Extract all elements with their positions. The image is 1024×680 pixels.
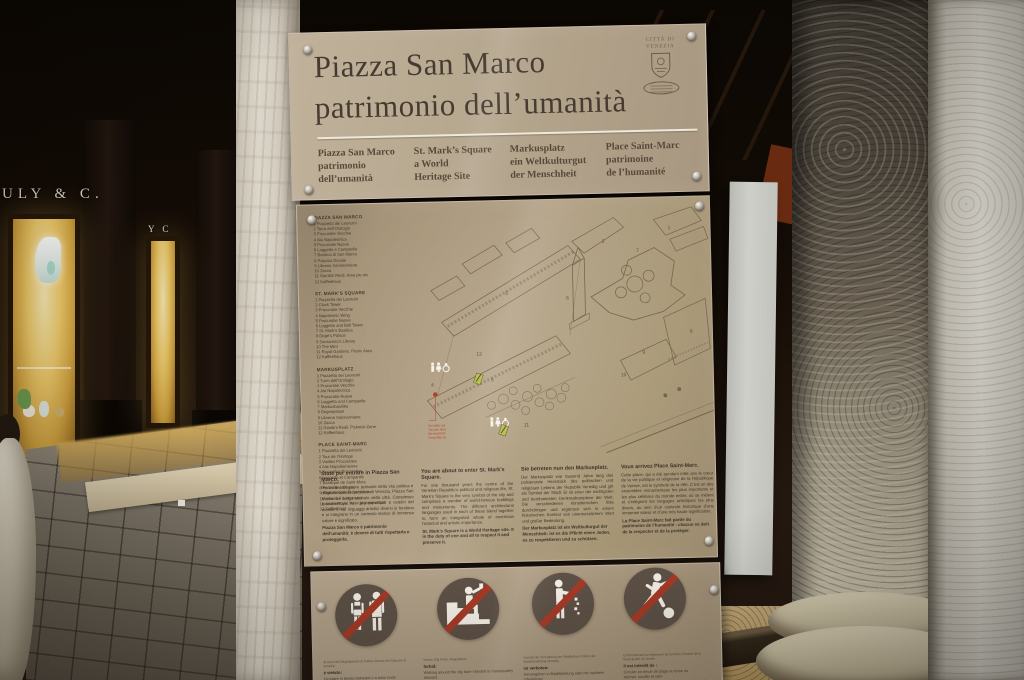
paragraph-french: Vous arrivez Place Saint-Marc. Cette pla… (621, 462, 715, 541)
screw (687, 32, 696, 41)
screw (705, 536, 714, 545)
svg-text:4: 4 (431, 383, 434, 389)
rules-english: Venice City Police Regulations forbid: W… (423, 656, 516, 680)
svg-text:12: 12 (476, 352, 482, 358)
rules-french: Conformément au règlement de la Police U… (623, 651, 716, 680)
rules-intro: Venice City Police Regulations (423, 656, 515, 662)
shop-window (146, 236, 180, 428)
sign-header-panel: Piazza San Marco patrimonio dell’umanità… (288, 23, 710, 200)
paragraph-footer: La Place Saint-Marc fait partie du patri… (622, 516, 714, 535)
rules-intro: Conformément au règlement de la Police U… (623, 651, 715, 661)
legend-items: 1 Piazzetta dei Leoncini 2 Clock Tower 3… (315, 295, 422, 360)
svg-text:11: 11 (524, 422, 530, 428)
rules-items: Circolare in tenuta balneare o a torso n… (324, 675, 416, 680)
paragraph-body: For one thousand years the centre of the… (421, 481, 514, 527)
rules-intro: Gemäß der Verordnung der Städtischen Pol… (523, 654, 615, 664)
screw (303, 45, 312, 54)
divider-line (317, 129, 697, 140)
translation-german: Markusplatz ein Weltkulturgut der Mensch… (510, 141, 607, 182)
no-littering-icon (531, 572, 594, 635)
screw (313, 551, 322, 560)
glassware (39, 401, 49, 417)
screw (317, 602, 326, 611)
svg-text:7: 7 (636, 248, 639, 254)
rules-text: Ai sensi del Regolamento di Polizia Urba… (323, 651, 716, 680)
photo-venice-arcade: ULY & C. Y C Piazza San Marco patrimonio… (0, 0, 1024, 680)
sign-title-line2: patrimonio dell’umanità (314, 83, 627, 125)
crest-seal-oval (643, 81, 679, 95)
translation-english: St. Mark’s Square a World Heritage Site (414, 143, 511, 184)
screw (304, 185, 313, 194)
sign-title: Piazza San Marco patrimonio dell’umanità (313, 40, 645, 129)
svg-text:Vous êtes ici: Vous êtes ici (428, 435, 446, 439)
legend-section-italian: PIAZZA SAN MARCO 1 Piazzetta dei Leoncin… (313, 213, 421, 284)
svg-text:3: 3 (505, 291, 508, 297)
svg-text:6: 6 (566, 296, 569, 302)
venice-crest-logo: CITTÀ DI VENEZIA (629, 37, 692, 95)
svg-text:8: 8 (690, 329, 693, 335)
paragraph-title: Sie betreten nun den Markusplatz. (521, 465, 613, 473)
paragraph-body: Der Markusplatz war tausend Jahre lang d… (521, 473, 614, 524)
shop-sign-text-partial: Y C (148, 224, 171, 234)
paragraph-german: Sie betreten nun den Markusplatz. Der Ma… (521, 465, 615, 544)
heritage-sign: Piazza San Marco patrimonio dell’umanità… (286, 17, 725, 680)
mottled-column (792, 0, 938, 680)
venice-shield-icon (650, 52, 673, 78)
white-column (928, 0, 1024, 680)
glass-sculpture (35, 237, 61, 283)
paper-scrap (178, 500, 185, 506)
rules-intro: Ai sensi del Regolamento di Polizia Urba… (323, 658, 415, 668)
screw (692, 171, 701, 180)
legend-items: 1 Piazzetta dei Leoncini 2 Turm dell’Oro… (317, 370, 424, 435)
sign-rules-panel: Ai sensi del Regolamento di Polizia Urba… (310, 562, 724, 680)
title-translations: Piazza San Marco patrimonio dell’umanità… (318, 138, 703, 186)
svg-text:10: 10 (621, 372, 627, 378)
rules-german: Gemäß der Verordnung der Städtischen Pol… (523, 654, 616, 680)
svg-text:1: 1 (667, 225, 670, 231)
svg-text:5: 5 (491, 377, 494, 383)
arcade-pilaster (196, 150, 240, 450)
rules-items: Circuler en tenue de plage ou torse nu A… (624, 668, 716, 680)
rules-items: Herumgehen in Badekleidung oder mit nack… (524, 670, 616, 680)
paragraph-english: You are about to enter St. Mark’s Square… (421, 467, 515, 546)
paragraph-title: State per entrare in Piazza San Marco. (321, 469, 413, 483)
paragraph-footer: Piazza San Marco è patrimonio dell’umani… (322, 523, 414, 542)
paragraph-italian: State per entrare in Piazza San Marco. P… (321, 469, 415, 548)
no-swimwear-icon (335, 584, 398, 647)
no-sitting-eating-icon (436, 577, 499, 640)
site-map: 1 2 3 4 5 6 7 8 9 10 11 12 (421, 198, 715, 464)
paragraph-title: Vous arrivez Place Saint-Marc. (621, 462, 713, 470)
legend-section-german: MARKUSPLATZ 1 Piazzetta dei Leoncini 2 T… (317, 364, 425, 435)
rules-items: Walking around the city bare-chested or … (424, 668, 516, 680)
translation-french: Place Saint-Marc patrimoine de l’humanit… (606, 138, 703, 179)
paragraph-footer: Der Markusplatz ist ein Weltkulturgut de… (522, 524, 614, 543)
plant-decor (17, 389, 31, 409)
glass-sculpture-accent (47, 261, 55, 275)
screw (710, 585, 719, 594)
crest-city-text: CITTÀ DI VENEZIA (629, 37, 691, 51)
grey-board (724, 182, 777, 576)
legend-section-english: ST. MARK’S SQUARE 1 Piazzetta dei Leonci… (315, 289, 423, 360)
glass-shelf (17, 367, 71, 369)
svg-text:2: 2 (602, 239, 605, 245)
paragraph-footer: St. Mark’s Square is a World Heritage si… (422, 526, 514, 545)
no-ball-games-icon (623, 567, 686, 630)
rules-italian: Ai sensi del Regolamento di Polizia Urba… (323, 658, 416, 680)
glassware (55, 407, 64, 417)
paragraph-title: You are about to enter St. Mark’s Square… (421, 467, 513, 481)
svg-text:9: 9 (642, 350, 645, 356)
paragraph-body: Cette place, qui a été pendant mille ans… (621, 470, 714, 516)
legend-items: 1 Piazzetta dei Leoncini 2 Torre dell’Or… (313, 219, 420, 284)
intro-paragraphs: State per entrare in Piazza San Marco. P… (321, 462, 715, 548)
sign-main-panel: PIAZZA SAN MARCO 1 Piazzetta dei Leoncin… (296, 195, 718, 566)
translation-italian: Piazza San Marco patrimonio dell’umanità (318, 145, 415, 186)
paragraph-body: Per mille anni cuore pulsante della vita… (321, 483, 414, 523)
sign-title-line1: Piazza San Marco (313, 44, 546, 84)
shop-sign-text: ULY & C. (2, 186, 104, 203)
